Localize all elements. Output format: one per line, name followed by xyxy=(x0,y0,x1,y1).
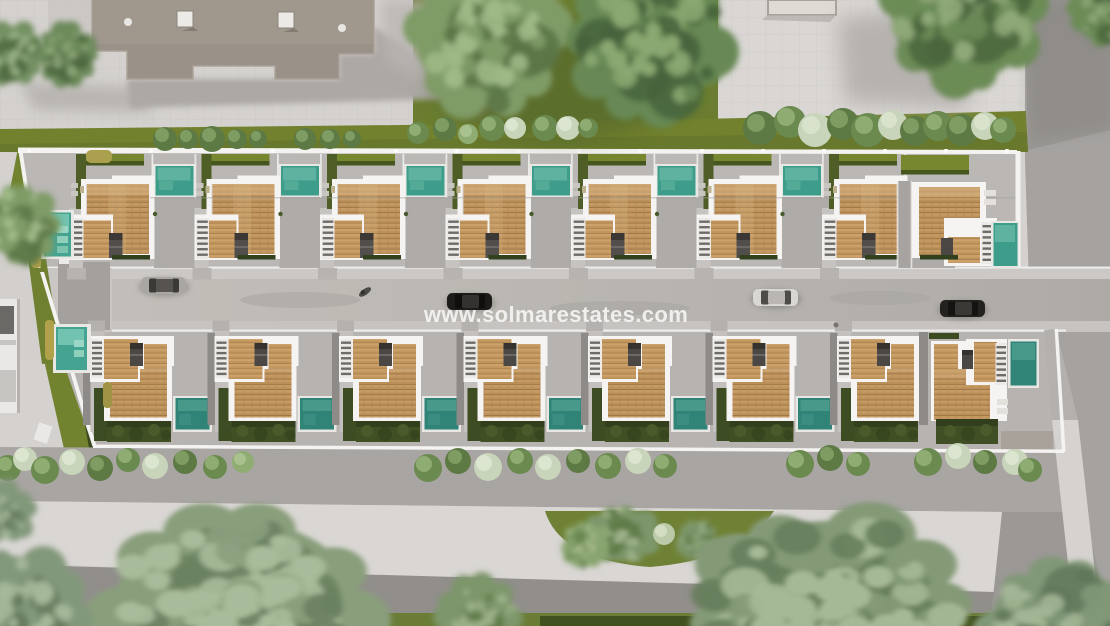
svg-text:www.solmarestates.com: www.solmarestates.com xyxy=(423,302,688,327)
